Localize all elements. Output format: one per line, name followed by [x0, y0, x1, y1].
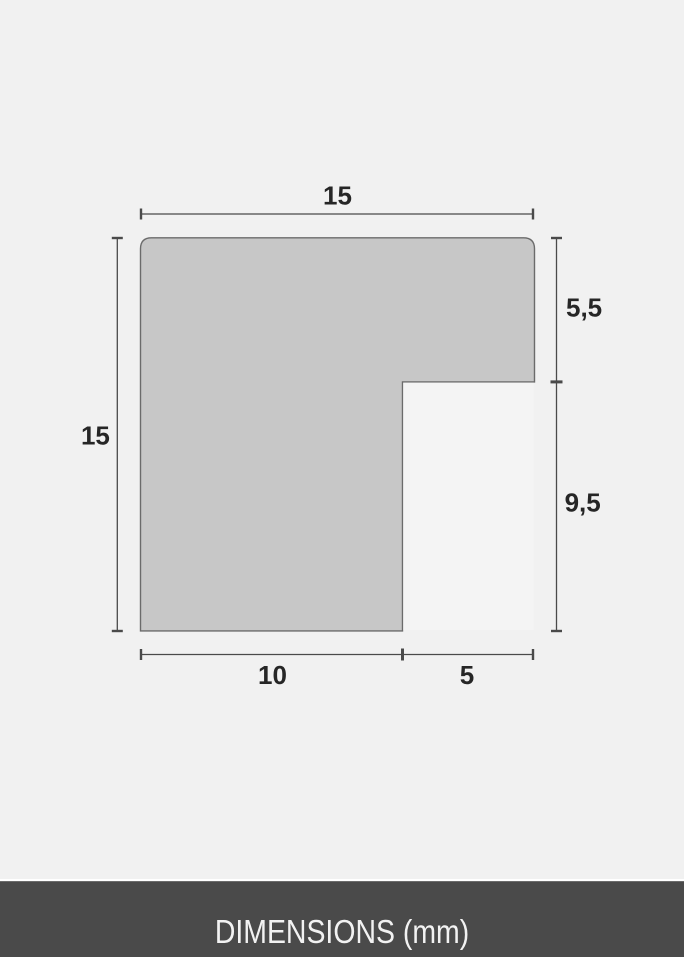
svg-text:15: 15 [323, 181, 352, 211]
svg-text:DIMENSIONS (mm): DIMENSIONS (mm) [215, 913, 469, 950]
svg-text:5,5: 5,5 [566, 293, 602, 323]
svg-text:9,5: 9,5 [565, 488, 601, 518]
svg-text:15: 15 [81, 421, 110, 451]
svg-text:5: 5 [460, 660, 474, 690]
svg-text:10: 10 [258, 660, 287, 690]
